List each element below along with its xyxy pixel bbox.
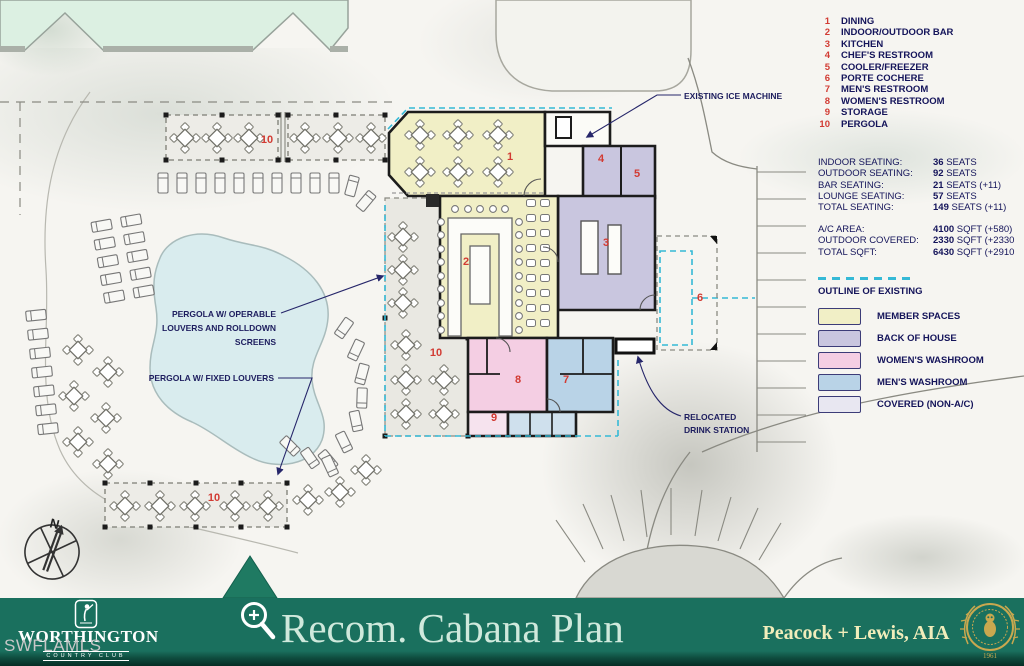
info-panel: 1DINING 2INDOOR/OUTDOOR BAR 3KITCHEN 4CH… — [0, 0, 1024, 598]
legend-item: MEMBER SPACES — [818, 305, 984, 327]
back-of-house-swatch — [818, 330, 861, 347]
stat-row: OUTDOOR SEATING:92 SEATS — [818, 168, 1006, 179]
footer-banner: WORTHINGTON COUNTRY CLUB Recom. Cabana P… — [0, 598, 1024, 666]
seating-stats: INDOOR SEATING:36 SEATS OUTDOOR SEATING:… — [818, 157, 1006, 213]
color-legend: OUTLINE OF EXISTING MEMBER SPACES BACK O… — [818, 277, 984, 416]
stat-row: BAR SEATING:21 SEATS (+11) — [818, 180, 1006, 191]
womens-washroom-swatch — [818, 352, 861, 369]
legend-item: BACK OF HOUSE — [818, 327, 984, 349]
architect-credit: Peacock + Lewis, AIA — [756, 622, 956, 645]
room-key-item: 7MEN'S RESTROOM — [814, 84, 953, 95]
stat-row: A/C AREA:4100 SQFT (+580) — [818, 224, 1014, 235]
room-key-list: 1DINING 2INDOOR/OUTDOOR BAR 3KITCHEN 4CH… — [814, 16, 953, 130]
room-key-item: 2INDOOR/OUTDOOR BAR — [814, 27, 953, 38]
legend-item: MEN'S WASHROOM — [818, 372, 984, 394]
legend-item: COVERED (NON-A/C) — [818, 394, 984, 416]
stat-row: OUTDOOR COVERED:2330 SQFT (+2330 — [818, 235, 1014, 246]
room-key-item: 9STORAGE — [814, 107, 953, 118]
member-spaces-swatch — [818, 308, 861, 325]
existing-outline-sample — [818, 277, 910, 280]
golfer-crest-icon — [74, 599, 98, 629]
covered-swatch — [818, 396, 861, 413]
room-key-item: 6PORTE COCHERE — [814, 73, 953, 84]
stat-row: TOTAL SQFT:6430 SQFT (+2910 — [818, 247, 1014, 258]
legend-title: OUTLINE OF EXISTING — [818, 286, 984, 297]
room-key-item: 8WOMEN'S RESTROOM — [814, 96, 953, 107]
mens-washroom-swatch — [818, 374, 861, 391]
peacock-lewis-seal-icon: 1961 — [948, 598, 1024, 664]
room-key-item: 4CHEF'S RESTROOM — [814, 50, 953, 61]
stat-row: TOTAL SEATING:149 SEATS (+11) — [818, 202, 1006, 213]
stat-row: INDOOR SEATING:36 SEATS — [818, 157, 1006, 168]
cabana-plan-image: N EXISTING ICE MACHINE PERGOLA W/ OPERAB… — [0, 0, 1024, 666]
stat-row: LOUNGE SEATING:57 SEATS — [818, 191, 1006, 202]
seal-year: 1961 — [983, 652, 998, 660]
room-key-item: 3KITCHEN — [814, 39, 953, 50]
room-key-item: 5COOLER/FREEZER — [814, 62, 953, 73]
plan-title: Recom. Cabana Plan — [281, 604, 624, 652]
room-key-item: 10PERGOLA — [814, 119, 953, 130]
room-key-item: 1DINING — [814, 16, 953, 27]
mls-watermark: SWFLAMLS — [4, 636, 102, 656]
legend-item: WOMEN'S WASHROOM — [818, 349, 984, 371]
area-stats: A/C AREA:4100 SQFT (+580) OUTDOOR COVERE… — [818, 224, 1014, 258]
zoom-in-icon — [238, 600, 280, 644]
